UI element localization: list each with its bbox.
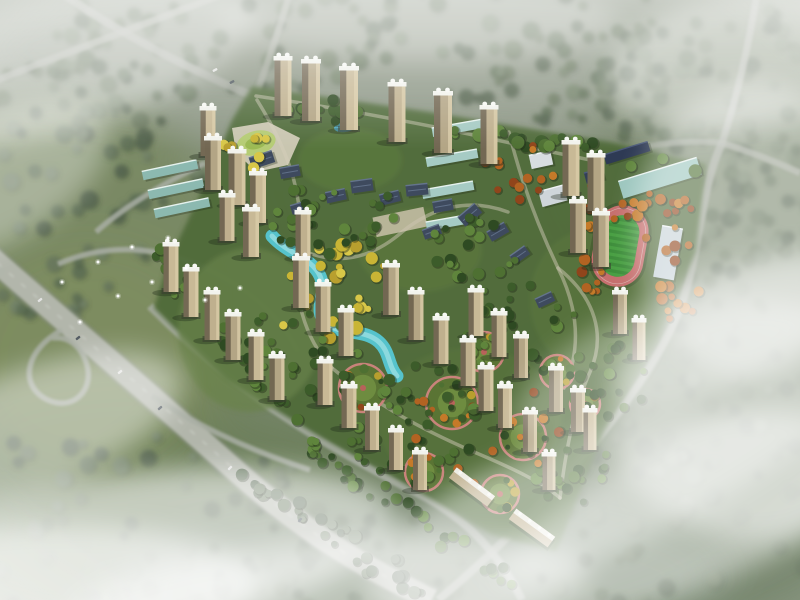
site-plan-rendering (0, 0, 800, 600)
aerial-rendering-canvas (0, 0, 800, 600)
edge-vignette (0, 0, 800, 600)
